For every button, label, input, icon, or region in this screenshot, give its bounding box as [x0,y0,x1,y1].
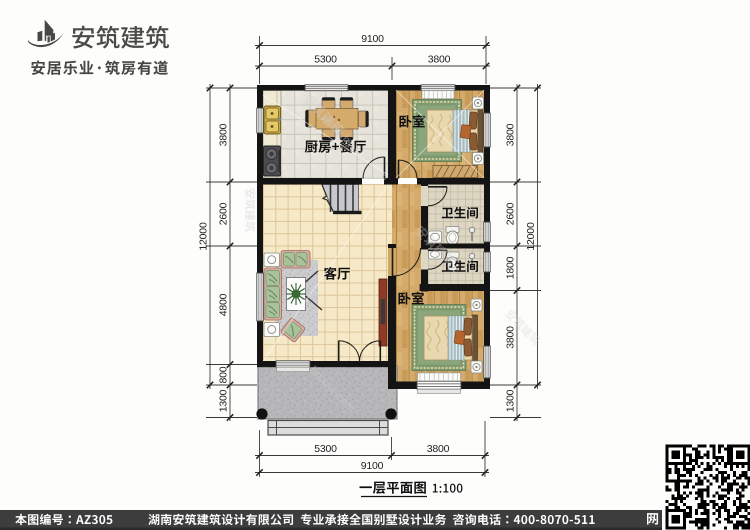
svg-text:9100: 9100 [361,460,384,472]
svg-text:4800: 4800 [218,293,230,316]
svg-text:5300: 5300 [314,443,337,455]
svg-text:12000: 12000 [525,222,537,251]
svg-text:12000: 12000 [198,222,210,251]
svg-text:1800: 1800 [505,256,517,279]
svg-text:800: 800 [218,366,230,383]
svg-text:3800: 3800 [505,123,517,146]
svg-text:1300: 1300 [505,389,517,412]
svg-text:3800: 3800 [218,123,230,146]
svg-text:3800: 3800 [428,54,451,66]
svg-text:3800: 3800 [427,443,450,455]
svg-text:5300: 5300 [314,54,337,66]
svg-text:2600: 2600 [505,202,517,225]
svg-text:9100: 9100 [361,33,384,45]
svg-text:3800: 3800 [505,326,517,349]
svg-text:1300: 1300 [218,389,230,412]
svg-text:2600: 2600 [218,202,230,225]
